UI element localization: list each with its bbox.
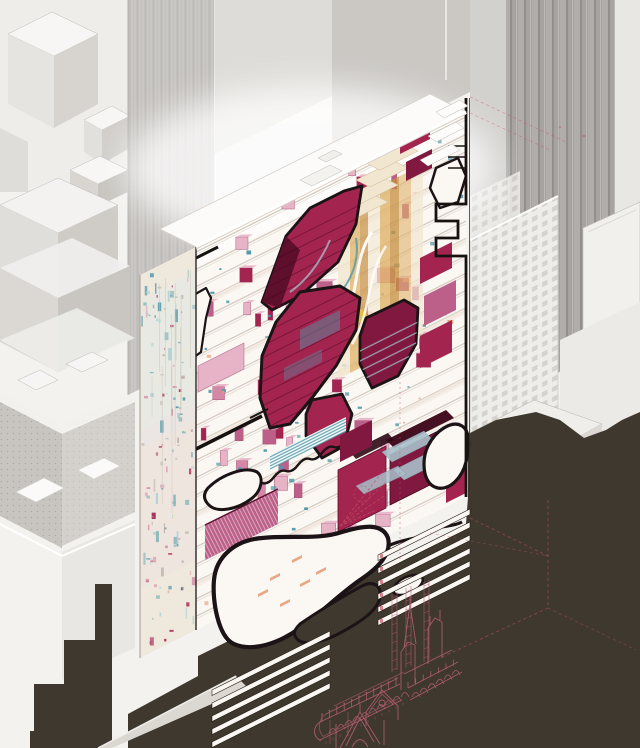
collage-mark [152, 513, 156, 519]
collage-mark [141, 316, 143, 327]
collage-mark [176, 544, 178, 547]
collage-mark [159, 446, 162, 448]
collage-mark [159, 587, 161, 589]
collage-mark [185, 531, 189, 533]
collage-mark [181, 588, 183, 591]
collage-mark [193, 616, 194, 624]
collage-mark [141, 443, 144, 446]
slat-red-tick [380, 580, 383, 584]
collage-mark [144, 396, 148, 398]
plan-speck [430, 242, 434, 246]
tower-collage-facade [140, 247, 196, 658]
partition-wall [255, 314, 260, 327]
collage-mark [169, 565, 170, 567]
collage-mark [141, 306, 145, 308]
collage-mark [172, 502, 176, 504]
plan-speck [222, 391, 224, 393]
plan-speck [395, 423, 399, 426]
partition-wall [375, 514, 390, 526]
collage-mark [156, 531, 159, 542]
collage-mark [152, 516, 154, 517]
collage-mark [156, 595, 160, 598]
collage-mark [173, 365, 175, 367]
roof-box [18, 370, 58, 390]
slat-red-tick [380, 606, 383, 610]
collage-mark [166, 438, 169, 439]
collage-mark [168, 586, 171, 590]
slat-red-tick [380, 567, 383, 571]
collage-mark [154, 479, 156, 491]
collage-mark [172, 286, 173, 288]
collage-mark [150, 637, 154, 645]
dotted-building [0, 352, 135, 548]
collage-mark [152, 522, 153, 525]
collage-mark [181, 376, 185, 379]
plan-speck [268, 315, 271, 317]
collage-mark [150, 514, 152, 517]
collage-mark [153, 557, 156, 563]
plan-speck [292, 528, 296, 531]
collage-mark [188, 270, 189, 278]
plan-speck [289, 479, 294, 483]
collage-mark [185, 500, 189, 505]
plan-speck [208, 390, 211, 393]
plan-speck [210, 292, 214, 294]
slat-red-tick [380, 593, 383, 597]
collage-mark [165, 546, 168, 549]
collage-mark [191, 429, 193, 432]
collage-mark [147, 313, 149, 315]
collage-mark [150, 561, 151, 564]
plan-speck [271, 486, 276, 490]
collage-mark [184, 349, 188, 352]
collage-mark [192, 577, 196, 585]
plan-speck [219, 268, 221, 270]
partition-wall [236, 237, 248, 249]
slat-red-tick [380, 554, 383, 558]
collage-mark [191, 562, 194, 564]
collage-mark [156, 319, 158, 322]
pinnacle-tip [329, 710, 331, 712]
pinnacle-tip [336, 706, 338, 708]
collage-mark [182, 362, 183, 363]
pinnacle-tip [380, 685, 382, 687]
plan-speck [264, 449, 267, 451]
collage-mark [190, 470, 191, 471]
collage-mark [160, 613, 161, 617]
slat-red-tick [380, 619, 383, 623]
collage-mark [170, 325, 174, 327]
collage-mark [177, 445, 179, 446]
collage-mark [160, 462, 163, 466]
plan-speck [407, 386, 409, 388]
collage-mark [187, 278, 188, 282]
collage-mark [177, 531, 179, 544]
collage-mark [146, 577, 148, 580]
collage-mark [149, 315, 151, 316]
pinnacle-tip [351, 699, 353, 701]
collage-mark [169, 630, 173, 632]
collage-mark [162, 310, 165, 312]
collage-mark [192, 305, 196, 309]
collage-mark [165, 458, 166, 461]
axonometric-drawing: Axonometric architectural cutaway drawin… [0, 0, 640, 748]
plan-speck [226, 301, 229, 304]
plan-speck [246, 250, 251, 254]
collage-mark [155, 283, 157, 294]
partition-wall [244, 303, 251, 315]
collage-mark [146, 291, 150, 294]
collage-mark [173, 299, 174, 303]
collage-mark [173, 386, 177, 388]
collage-mark [153, 305, 154, 308]
collage-mark [146, 306, 148, 318]
collage-mark [169, 270, 172, 272]
collage-mark [186, 608, 187, 619]
plan-speck [207, 355, 212, 358]
collage-mark [161, 568, 164, 577]
lowrise-face [0, 520, 62, 700]
collage-mark [190, 571, 191, 575]
collage-mark [182, 560, 184, 563]
collage-content [140, 247, 196, 658]
plan-speck [204, 601, 208, 605]
collage-mark [191, 466, 195, 469]
collage-mark [146, 558, 150, 560]
collage-mark [157, 295, 158, 298]
collage-mark [168, 291, 170, 302]
pinnacle-tip [343, 703, 345, 705]
collage-mark [177, 438, 179, 443]
collage-mark [173, 495, 176, 507]
collage-mark [176, 406, 179, 408]
plan-speck [295, 422, 298, 424]
collage-mark [157, 375, 161, 379]
partition-wall [263, 430, 276, 445]
partition-wall [294, 484, 302, 498]
collage-mark [154, 584, 157, 587]
collage-mark [170, 291, 174, 298]
collage-mark [153, 383, 155, 385]
red-dot [583, 135, 586, 138]
collage-mark [176, 291, 180, 293]
collage-mark [171, 590, 173, 592]
plan-speck [205, 348, 208, 350]
partition-wall [213, 386, 225, 399]
collage-mark [145, 286, 148, 295]
collage-mark [179, 413, 182, 415]
collage-mark [148, 525, 149, 531]
collage-mark [156, 452, 158, 456]
partition-wall [240, 268, 252, 282]
plan-speck [403, 422, 405, 424]
collage-mark [148, 418, 151, 419]
pinnacle-tip [373, 688, 375, 690]
pinnacle-tip [395, 677, 397, 679]
collage-mark [164, 523, 165, 533]
plan-speck [418, 398, 420, 400]
collage-mark [143, 553, 145, 565]
collage-mark [166, 466, 168, 472]
collage-mark [168, 590, 170, 593]
partition-wall [220, 451, 227, 466]
plan-speck [345, 392, 349, 395]
collage-mark [164, 639, 166, 642]
plan-speck [304, 507, 308, 510]
collage-mark [160, 420, 164, 432]
collage-mark [152, 618, 153, 620]
plan-speck [328, 459, 332, 462]
collage-mark [162, 354, 165, 356]
pinnacle-tip [388, 681, 390, 683]
pinnacle-tip [321, 713, 323, 715]
collage-mark [147, 487, 151, 489]
drawing-canvas: Axonometric architectural cutaway drawin… [0, 0, 640, 748]
pinnacle-tip [358, 695, 360, 697]
partition-wall [332, 380, 341, 393]
pinnacle-tip [366, 692, 368, 694]
plan-speck [297, 435, 300, 438]
collage-mark [175, 458, 177, 460]
plan-speck [279, 466, 284, 470]
collage-mark [166, 393, 168, 394]
collage-mark [183, 397, 186, 400]
red-dot [559, 126, 561, 128]
collage-mark [164, 348, 165, 350]
collage-mark [156, 493, 158, 504]
collage-mark [147, 496, 150, 499]
collage-mark [155, 315, 156, 318]
collage-mark [174, 545, 176, 547]
collage-mark [192, 495, 194, 499]
partition-wall [201, 428, 206, 440]
collage-wash [141, 402, 196, 588]
collage-mark [173, 511, 177, 522]
collage-mark [168, 553, 172, 555]
collage-mark [184, 428, 188, 432]
collage-mark [188, 439, 190, 452]
collage-mark [189, 590, 192, 593]
collage-mark [150, 372, 154, 373]
collage-mark [150, 273, 154, 277]
plan-speck [358, 407, 362, 409]
collage-mark [151, 343, 153, 346]
collage-mark [153, 532, 155, 535]
collage-mark [186, 602, 189, 606]
collage-mark [191, 452, 193, 457]
plan-speck [216, 463, 220, 466]
collage-mark [143, 302, 146, 305]
